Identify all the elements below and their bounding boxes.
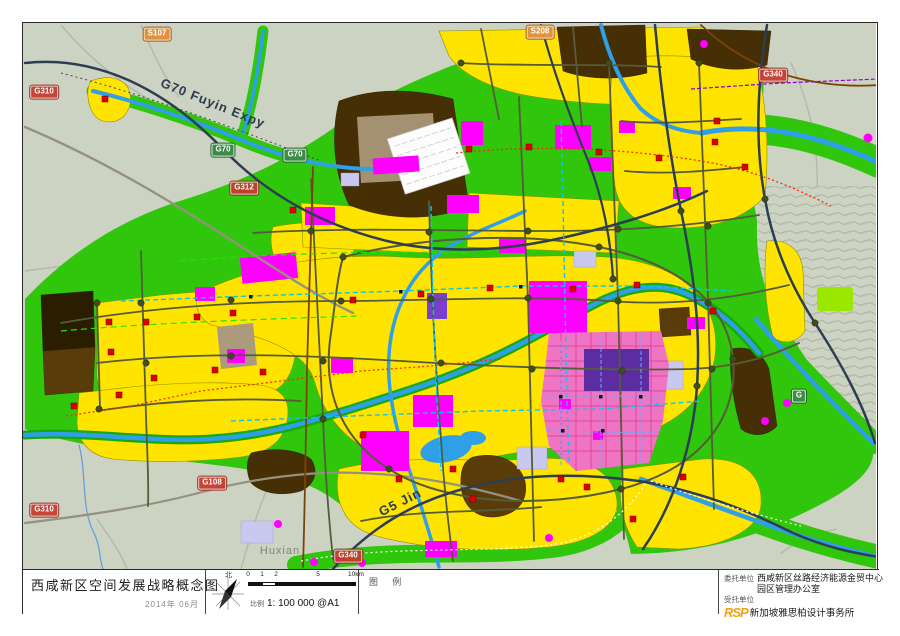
- title-bar: 西咸新区空间发展战略概念图 2014年 06月 北: [23, 569, 879, 614]
- page: 西咸新区空间发展战略概念图 2014年 06月 北: [0, 0, 900, 636]
- legend-label: 图 例: [369, 575, 407, 588]
- map-canvas: [23, 23, 876, 569]
- map-title: 西咸新区空间发展战略概念图: [31, 575, 220, 594]
- north-arrow: 北: [208, 570, 248, 614]
- scale-tick: 0: [246, 571, 250, 578]
- map-date: 2014年 06月: [145, 599, 199, 610]
- map-frame: 西咸新区空间发展战略概念图 2014年 06月 北: [22, 22, 878, 614]
- legend-cell: 图 例: [359, 570, 719, 614]
- consultant-name: 新加坡雅思柏设计事务所: [750, 605, 855, 619]
- scale-value: 1: 100 000 @A1: [267, 598, 339, 609]
- client-name-line2: 园区管理办公室: [757, 584, 879, 595]
- scale-label: 比例: [250, 601, 264, 608]
- client-name-line1: 西咸新区丝路经济能源金贸中心: [757, 573, 883, 584]
- title-cell: 西咸新区空间发展战略概念图 2014年 06月: [23, 570, 206, 614]
- scale-cell: 北 012510km 比例1: 100 000 @A1: [206, 570, 359, 614]
- scale-tick: 5: [316, 571, 320, 578]
- scale-bar: 012510km: [248, 578, 356, 588]
- scale-text: 比例1: 100 000 @A1: [250, 598, 339, 609]
- north-label: 北: [225, 570, 232, 580]
- client-label: 委托单位: [724, 573, 754, 584]
- info-cell: 委托单位 西咸新区丝路经济能源金贸中心 园区管理办公室 受托单位 RSP 新加坡…: [719, 570, 879, 614]
- consultant-label: 受托单位: [724, 595, 879, 605]
- scale-tick: 1: [260, 571, 264, 578]
- planning-map-svg: [23, 23, 876, 569]
- scale-tick: 2: [274, 571, 278, 578]
- rsp-logo: RSP: [724, 605, 748, 620]
